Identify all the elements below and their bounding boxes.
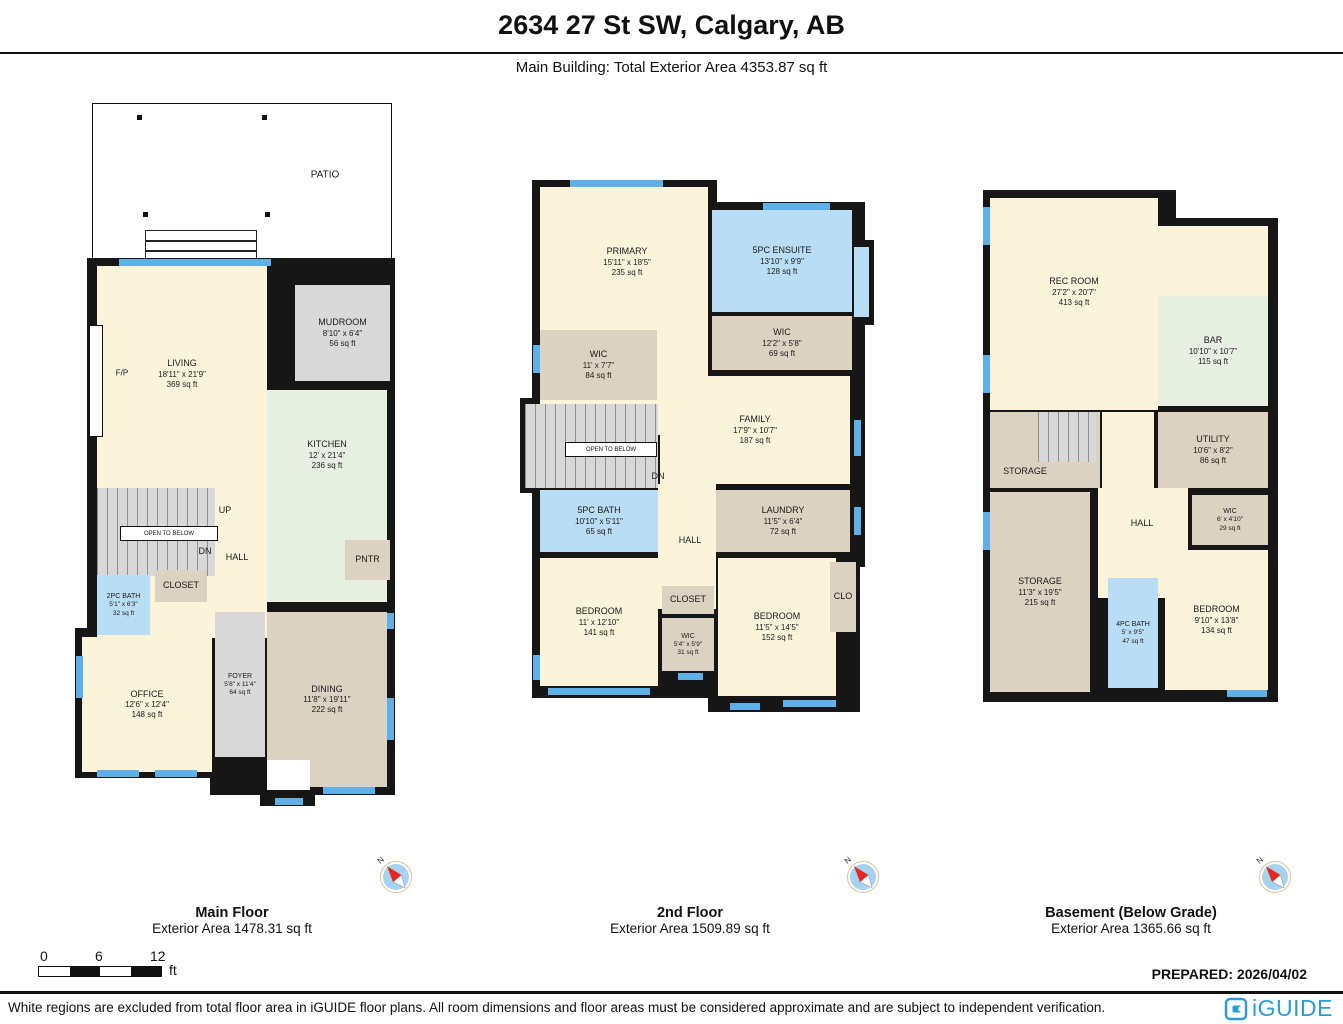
room-label-2pc-bath: 2PC BATH 5'1" x 6'3" 32 sq ft [97, 575, 150, 635]
room-area: 84 sq ft [585, 371, 611, 381]
floor-name: Main Floor [72, 905, 392, 921]
room-dims: 9'10" x 13'8" [1195, 616, 1239, 626]
room-area: 236 sq ft [312, 461, 343, 471]
room-label-bedroom-left: BEDROOM 11' x 12'10" 141 sq ft [540, 558, 658, 686]
room-utility: UTILITY 10'6" x 8'2" 86 sq ft [1158, 412, 1268, 488]
floor-plan-basement: REC ROOM 27'2" x 20'7" 413 sq ft BAR 10'… [980, 190, 1280, 706]
room-5pc-bath: 5PC BATH 10'10" x 5'11" 65 sq ft [540, 490, 658, 552]
scale-unit: ft [169, 962, 177, 978]
room-label-rec: REC ROOM 27'2" x 20'7" 413 sq ft [1049, 276, 1099, 308]
room-bar: BAR 10'10" x 10'7" 115 sq ft [1158, 296, 1268, 406]
room-dims: 11'3" x 19'5" [1018, 588, 1061, 598]
room-wic-left: WIC 11' x 7'7" 84 sq ft [540, 330, 657, 400]
room-clo: CLO [830, 562, 856, 632]
floor-label-main: Main Floor Exterior Area 1478.31 sq ft [72, 905, 392, 936]
room-dims: 12'6" x 12'4" [125, 700, 169, 710]
room-bedroom-right: BEDROOM 11'5" x 14'5" 152 sq ft [718, 558, 836, 696]
staircase [1038, 412, 1096, 462]
compass-icon: N [375, 853, 415, 900]
floor-plan-second: PRIMARY 15'11" x 18'5" 235 sq ft 5PC ENS… [520, 180, 876, 712]
room-area: 32 sq ft [113, 610, 134, 618]
room-dims: 5'1" x 6'3" [109, 601, 137, 609]
window [548, 688, 650, 695]
room-area: 369 sq ft [167, 380, 198, 390]
room-area: 56 sq ft [329, 339, 355, 349]
room-dims: 11' x 12'10" [579, 618, 619, 628]
room-label-hall: HALL [1131, 518, 1154, 528]
iguide-logo-icon [1224, 997, 1248, 1021]
floor-plan-main: PATIO LIVING 18'11" x 21'9" 369 sq ft MU… [75, 100, 395, 806]
window [76, 656, 83, 698]
room-label-5pc-ensuite: 5PC ENSUITE 13'10" x 9'9" 128 sq ft [712, 210, 852, 312]
room-name: FOYER [228, 672, 252, 681]
floor-area: Exterior Area 1509.89 sq ft [530, 921, 850, 936]
room-area: 134 sq ft [1201, 626, 1232, 636]
room-area: 29 sq ft [1219, 525, 1240, 533]
room-label-primary: PRIMARY 15'11" x 18'5" 235 sq ft [603, 246, 651, 278]
room-name: WIC [1223, 507, 1237, 516]
room-name: WIC [681, 632, 695, 641]
room-label-laundry: LAUNDRY 11'5" x 6'4" 72 sq ft [716, 490, 850, 552]
window [783, 700, 836, 707]
room-label-wic-left: WIC 11' x 7'7" 84 sq ft [540, 330, 657, 400]
window [533, 345, 540, 373]
window [275, 798, 303, 805]
room-name: MUDROOM [318, 317, 367, 329]
room-name: UTILITY [1196, 434, 1230, 446]
room-name: BAR [1204, 335, 1223, 347]
room-dims: 27'2" x 20'7" [1052, 288, 1096, 298]
room-label-wic-mid: WIC 5'4" x 5'9" 31 sq ft [662, 618, 714, 671]
room-area: 235 sq ft [612, 268, 643, 278]
room-name: OFFICE [131, 689, 164, 701]
room-pantry: PNTR [345, 540, 390, 580]
window [387, 613, 394, 629]
prepared-date: PREPARED: 2026/04/02 [1152, 966, 1307, 982]
floor-plan-page: 2634 27 St SW, Calgary, AB Main Building… [0, 0, 1343, 1024]
room-area: 141 sq ft [584, 628, 615, 638]
window [155, 770, 197, 777]
room-area: 413 sq ft [1059, 298, 1090, 308]
room-mudroom: MUDROOM 8'10" x 6'4" 56 sq ft [295, 285, 390, 381]
window [119, 259, 271, 266]
window [854, 507, 861, 535]
room-name: CLOSET [163, 580, 199, 592]
room-area: 31 sq ft [677, 649, 698, 657]
room-dims: 12'2" x 5'8" [762, 339, 801, 349]
patio-post [262, 115, 267, 120]
room-office: OFFICE 12'6" x 12'4" 148 sq ft [82, 637, 212, 772]
room-label-bedroom: BEDROOM 9'10" x 13'8" 134 sq ft [1165, 550, 1268, 690]
room-name: CLOSET [670, 594, 706, 606]
room-hall-area [1102, 412, 1154, 488]
room-closet-mid: CLOSET [662, 586, 714, 614]
room-label-storage-upper: STORAGE [1003, 466, 1047, 476]
room-dims: 10'6" x 8'2" [1193, 446, 1232, 456]
room-label-wic: WIC 6' x 4'10" 29 sq ft [1192, 495, 1268, 545]
room-label-closet: CLOSET [155, 570, 207, 602]
room-name: 4PC BATH [1116, 620, 1150, 629]
room-laundry: LAUNDRY 11'5" x 6'4" 72 sq ft [716, 490, 850, 552]
room-area: 215 sq ft [1025, 598, 1056, 608]
room-label-clo: CLO [830, 562, 856, 632]
room-name: BEDROOM [576, 606, 623, 618]
room-name: LAUNDRY [762, 505, 805, 517]
window [983, 207, 990, 245]
room-name: PRIMARY [607, 246, 648, 258]
header-divider [0, 52, 1343, 54]
compass-n-label: N [843, 855, 853, 866]
scale-bar-segments [38, 966, 162, 977]
room-bedroom-left: BEDROOM 11' x 12'10" 141 sq ft [540, 558, 658, 686]
entry-porch [267, 760, 310, 790]
room-bedroom: BEDROOM 9'10" x 13'8" 134 sq ft [1165, 550, 1268, 690]
room-name: KITCHEN [307, 439, 347, 451]
compass-n-label: N [376, 855, 386, 866]
room-dims: 18'11" x 21'9" [158, 370, 206, 380]
room-dims: 13'10" x 9'9" [760, 257, 804, 267]
window [763, 203, 830, 210]
room-label-bedroom-right: BEDROOM 11'5" x 14'5" 152 sq ft [718, 558, 836, 696]
room-5pc-ensuite: 5PC ENSUITE 13'10" x 9'9" 128 sq ft [712, 210, 852, 312]
room-name: DINING [311, 684, 343, 696]
room-dims: 8'10" x 6'4" [323, 329, 362, 339]
room-foyer: FOYER 5'8" x 11'4" 64 sq ft [215, 612, 265, 757]
room-label-closet-mid: CLOSET [662, 586, 714, 614]
room-dims: 17'9" x 10'7" [733, 426, 777, 436]
room-dims: 5' x 9'5" [1122, 629, 1145, 637]
window [533, 655, 540, 680]
room-area: 69 sq ft [769, 349, 795, 359]
floor-label-second: 2nd Floor Exterior Area 1509.89 sq ft [530, 905, 850, 936]
fireplace [89, 325, 103, 437]
room-name: CLO [834, 591, 853, 603]
room-label-bar: BAR 10'10" x 10'7" 115 sq ft [1158, 296, 1268, 406]
room-2pc-bath: 2PC BATH 5'1" x 6'3" 32 sq ft [97, 575, 150, 635]
room-area: 64 sq ft [229, 689, 250, 697]
room-label-storage-lower: STORAGE 11'3" x 19'5" 215 sq ft [990, 492, 1090, 692]
scale-bar: 0 6 12 ft [38, 948, 228, 984]
room-name: 5PC BATH [577, 505, 620, 517]
scale-tick-0: 0 [40, 948, 48, 964]
room-name: 2PC BATH [107, 592, 141, 601]
room-area: 47 sq ft [1122, 638, 1143, 646]
room-dims: 10'10" x 5'11" [575, 517, 623, 527]
footer-divider [0, 991, 1343, 994]
room-label-foyer: FOYER 5'8" x 11'4" 64 sq ft [215, 612, 265, 757]
room-label-hall: HALL [226, 552, 249, 562]
room-area: 152 sq ft [762, 633, 793, 643]
room-label-mudroom: MUDROOM 8'10" x 6'4" 56 sq ft [295, 285, 390, 381]
room-family: FAMILY 17'9" x 10'7" 187 sq ft [660, 376, 850, 484]
room-dims: 11'5" x 14'5" [755, 623, 798, 633]
room-dims: 6' x 4'10" [1217, 516, 1243, 524]
room-name: REC ROOM [1049, 276, 1099, 288]
window [678, 673, 703, 680]
page-subtitle: Main Building: Total Exterior Area 4353.… [0, 59, 1343, 76]
room-name: 5PC ENSUITE [752, 245, 811, 257]
room-name: LIVING [167, 358, 197, 370]
window [387, 698, 394, 740]
room-area: 148 sq ft [132, 710, 163, 720]
floor-area: Exterior Area 1365.66 sq ft [971, 921, 1291, 936]
room-name: BEDROOM [754, 611, 801, 623]
room-name: BEDROOM [1193, 604, 1240, 616]
room-name: PNTR [355, 554, 380, 566]
fireplace-label: F/P [116, 369, 128, 378]
window [854, 420, 861, 456]
room-storage-lower: STORAGE 11'3" x 19'5" 215 sq ft [990, 492, 1090, 692]
room-dims: 5'8" x 11'4" [224, 681, 256, 689]
window [983, 355, 990, 393]
room-area: 65 sq ft [586, 527, 612, 537]
floor-area: Exterior Area 1478.31 sq ft [72, 921, 392, 936]
window [983, 512, 990, 550]
room-label-kitchen: KITCHEN 12' x 21'4" 236 sq ft [307, 439, 347, 471]
room-label-family: FAMILY 17'9" x 10'7" 187 sq ft [660, 376, 850, 484]
room-label-patio: PATIO [311, 170, 340, 181]
stairs-dn-label: DN [652, 471, 665, 481]
room-label-5pc-bath: 5PC BATH 10'10" x 5'11" 65 sq ft [540, 490, 658, 552]
room-dims: 15'11" x 18'5" [603, 258, 651, 268]
room-area: 86 sq ft [1200, 456, 1226, 466]
room-label-wic-right: WIC 12'2" x 5'8" 69 sq ft [712, 316, 852, 370]
room-dims: 10'10" x 10'7" [1189, 347, 1237, 357]
patio-post [265, 212, 270, 217]
room-wic-right: WIC 12'2" x 5'8" 69 sq ft [712, 316, 852, 370]
room-rec-ext [1148, 226, 1268, 296]
room-wic: WIC 6' x 4'10" 29 sq ft [1192, 495, 1268, 545]
room-dims: 11'5" x 6'4" [764, 517, 803, 527]
patio-post [137, 115, 142, 120]
scale-tick-6: 6 [95, 948, 103, 964]
room-ensuite-notch [854, 247, 869, 317]
open-to-below-banner: OPEN TO BELOW [120, 526, 218, 541]
window [323, 787, 375, 794]
room-area: 128 sq ft [767, 267, 798, 277]
patio-post [143, 212, 148, 217]
iguide-logo-text: iGUIDE [1252, 995, 1333, 1022]
room-name: STORAGE [1018, 576, 1062, 588]
iguide-logo: iGUIDE [1224, 995, 1333, 1022]
floor-label-basement: Basement (Below Grade) Exterior Area 136… [971, 905, 1291, 936]
room-area: 222 sq ft [312, 705, 343, 715]
compass-icon: N [1254, 853, 1294, 900]
disclaimer-text: White regions are excluded from total fl… [8, 1000, 1105, 1015]
floor-name: Basement (Below Grade) [971, 905, 1291, 921]
window [97, 770, 139, 777]
room-dims: 12' x 21'4" [309, 451, 346, 461]
room-dims: 11' x 7'7" [583, 361, 615, 371]
compass-n-label: N [1255, 855, 1265, 866]
stairs-up-label: UP [219, 505, 232, 515]
room-area: 115 sq ft [1198, 357, 1228, 367]
room-label-pantry: PNTR [345, 540, 390, 580]
room-4pc-bath: 4PC BATH 5' x 9'5" 47 sq ft [1108, 578, 1158, 688]
room-name: WIC [773, 327, 791, 339]
floor-name: 2nd Floor [530, 905, 850, 921]
room-area: 187 sq ft [740, 436, 771, 446]
window [1227, 690, 1267, 697]
room-area: 72 sq ft [770, 527, 796, 537]
room-label-4pc-bath: 4PC BATH 5' x 9'5" 47 sq ft [1108, 578, 1158, 688]
room-dims: 11'8" x 19'11" [303, 695, 350, 705]
window [570, 180, 663, 187]
room-name: FAMILY [739, 414, 770, 426]
room-dims: 5'4" x 5'9" [674, 641, 702, 649]
page-title: 2634 27 St SW, Calgary, AB [0, 10, 1343, 41]
scale-tick-12: 12 [150, 948, 166, 964]
compass-icon: N [842, 853, 882, 900]
room-name: WIC [590, 349, 608, 361]
open-to-below-banner: OPEN TO BELOW [565, 442, 657, 457]
window [730, 703, 760, 710]
room-label-hall: HALL [679, 535, 702, 545]
room-label-office: OFFICE 12'6" x 12'4" 148 sq ft [82, 637, 212, 772]
stairs-dn-label: DN [199, 546, 212, 556]
room-wic-mid: WIC 5'4" x 5'9" 31 sq ft [662, 618, 714, 671]
room-closet: CLOSET [155, 570, 207, 602]
room-label-utility: UTILITY 10'6" x 8'2" 86 sq ft [1158, 412, 1268, 488]
